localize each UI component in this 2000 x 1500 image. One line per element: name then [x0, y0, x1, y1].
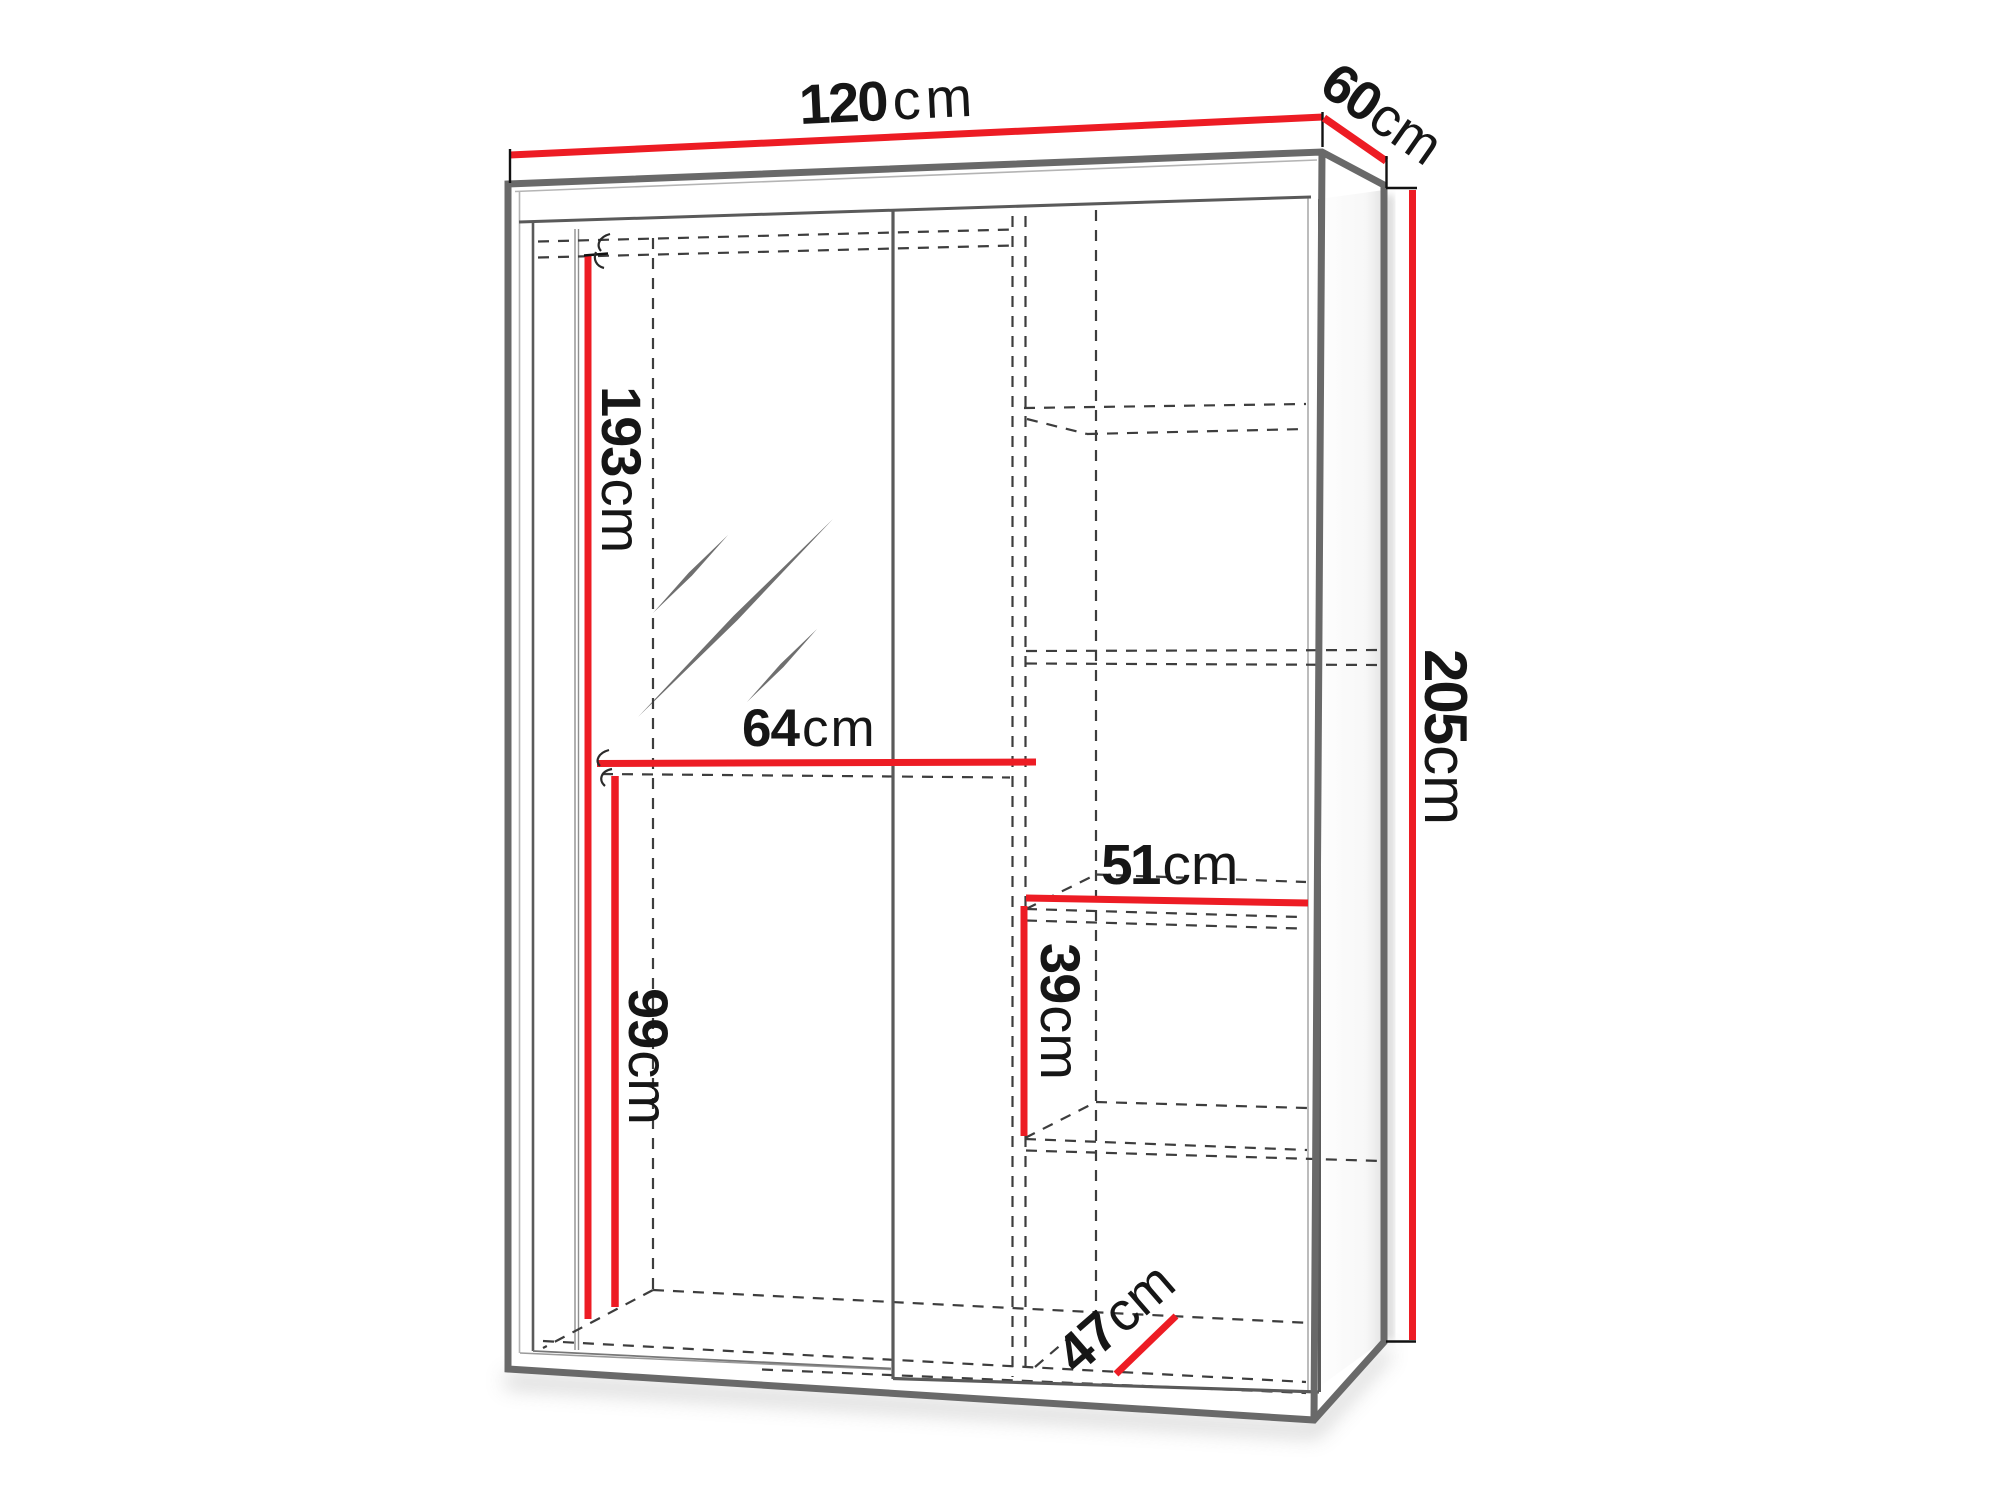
svg-text:51cm: 51cm	[1101, 833, 1238, 897]
svg-text:99cm: 99cm	[617, 988, 680, 1125]
svg-text:205cm: 205cm	[1412, 649, 1479, 825]
svg-text:39cm: 39cm	[1029, 943, 1092, 1080]
svg-text:193cm: 193cm	[590, 386, 653, 553]
svg-text:64cm: 64cm	[742, 699, 877, 758]
